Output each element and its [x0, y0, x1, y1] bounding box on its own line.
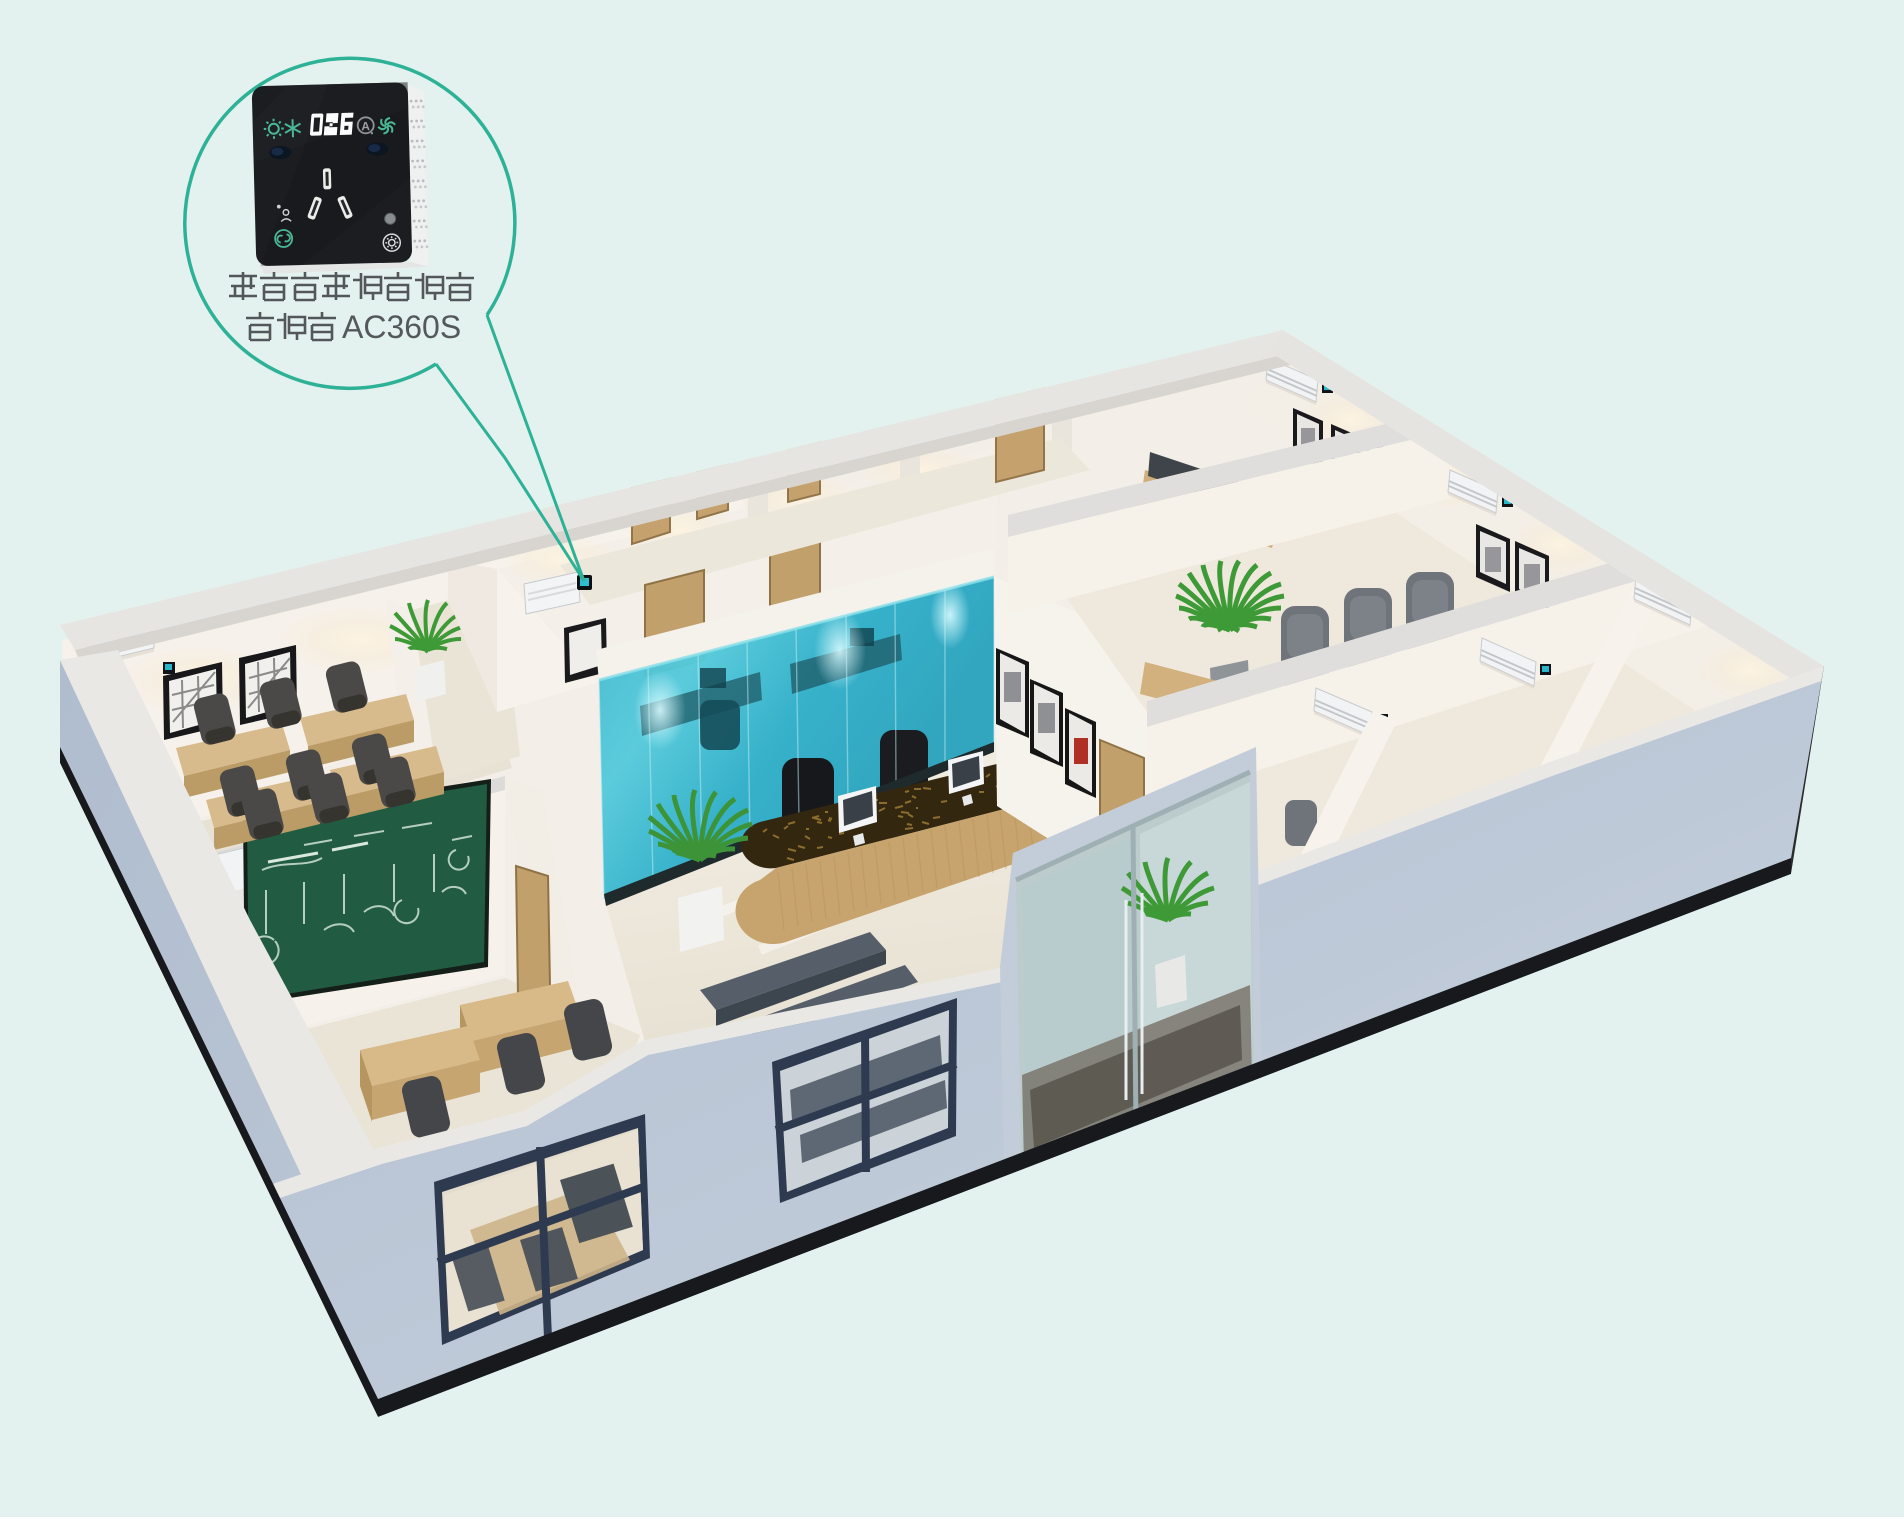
svg-text:AC360S: AC360S	[342, 309, 461, 345]
svg-text:A: A	[361, 119, 370, 133]
